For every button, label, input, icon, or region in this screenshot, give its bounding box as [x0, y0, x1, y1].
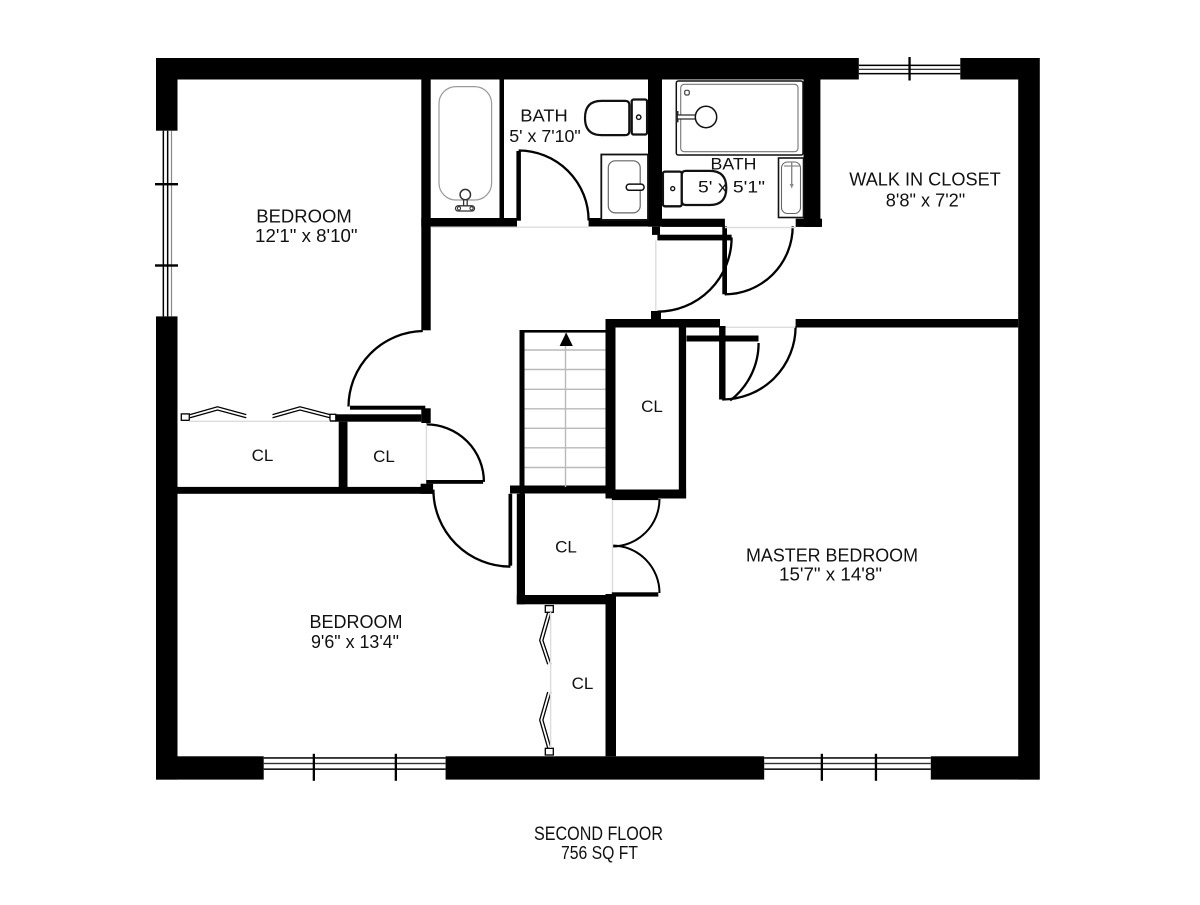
svg-text:CL: CL	[641, 397, 663, 416]
svg-text:BATH: BATH	[711, 155, 757, 174]
svg-text:CL: CL	[252, 446, 274, 465]
svg-text:CL: CL	[572, 674, 594, 693]
svg-text:15'7" x 14'8": 15'7" x 14'8"	[779, 565, 882, 585]
svg-text:12'1" x 8'10": 12'1" x 8'10"	[255, 226, 358, 246]
svg-text:5' x 5'1": 5' x 5'1"	[698, 178, 765, 197]
svg-text:9'6" x 13'4": 9'6" x 13'4"	[311, 632, 399, 652]
svg-text:MASTER BEDROOM: MASTER BEDROOM	[746, 546, 918, 566]
svg-text:CL: CL	[373, 447, 395, 466]
svg-text:756 SQ FT: 756 SQ FT	[561, 842, 638, 863]
svg-text:BEDROOM: BEDROOM	[256, 206, 352, 226]
svg-text:5' x 7'10": 5' x 7'10"	[509, 126, 581, 146]
svg-text:WALK IN CLOSET: WALK IN CLOSET	[849, 168, 1001, 189]
svg-text:BATH: BATH	[520, 105, 568, 125]
svg-text:BEDROOM: BEDROOM	[310, 612, 403, 632]
svg-text:8'8" x 7'2": 8'8" x 7'2"	[886, 191, 966, 211]
svg-text:CL: CL	[555, 538, 577, 557]
